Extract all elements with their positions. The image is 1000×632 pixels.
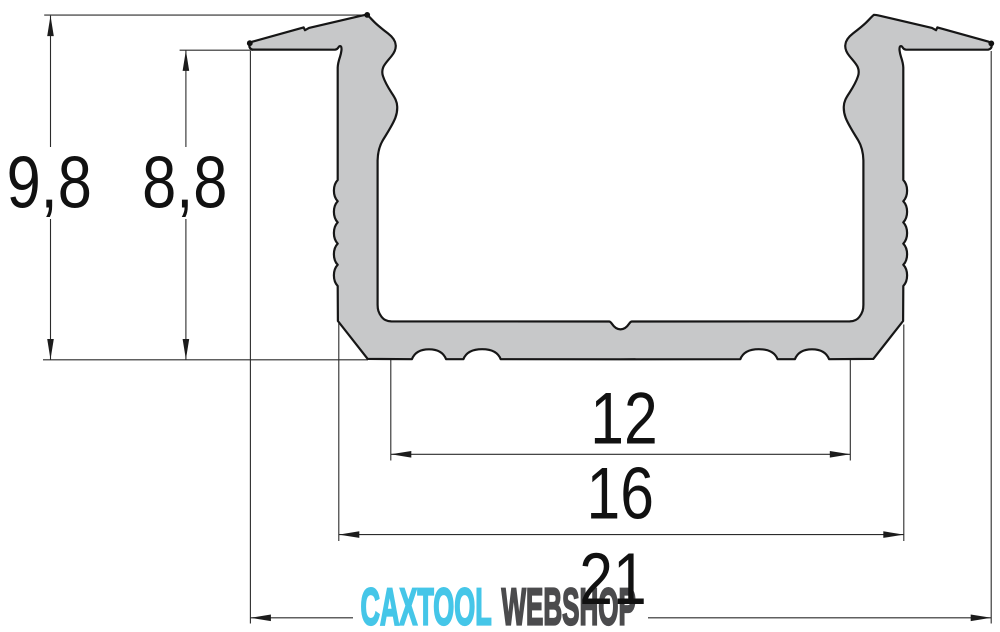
svg-text:8,8: 8,8 — [142, 142, 227, 223]
svg-text:12: 12 — [590, 378, 657, 460]
svg-text:21: 21 — [579, 539, 646, 621]
svg-text:CAXTOOL: CAXTOOL — [361, 578, 492, 632]
svg-text:9,8: 9,8 — [7, 142, 92, 223]
svg-text:16: 16 — [586, 453, 653, 535]
